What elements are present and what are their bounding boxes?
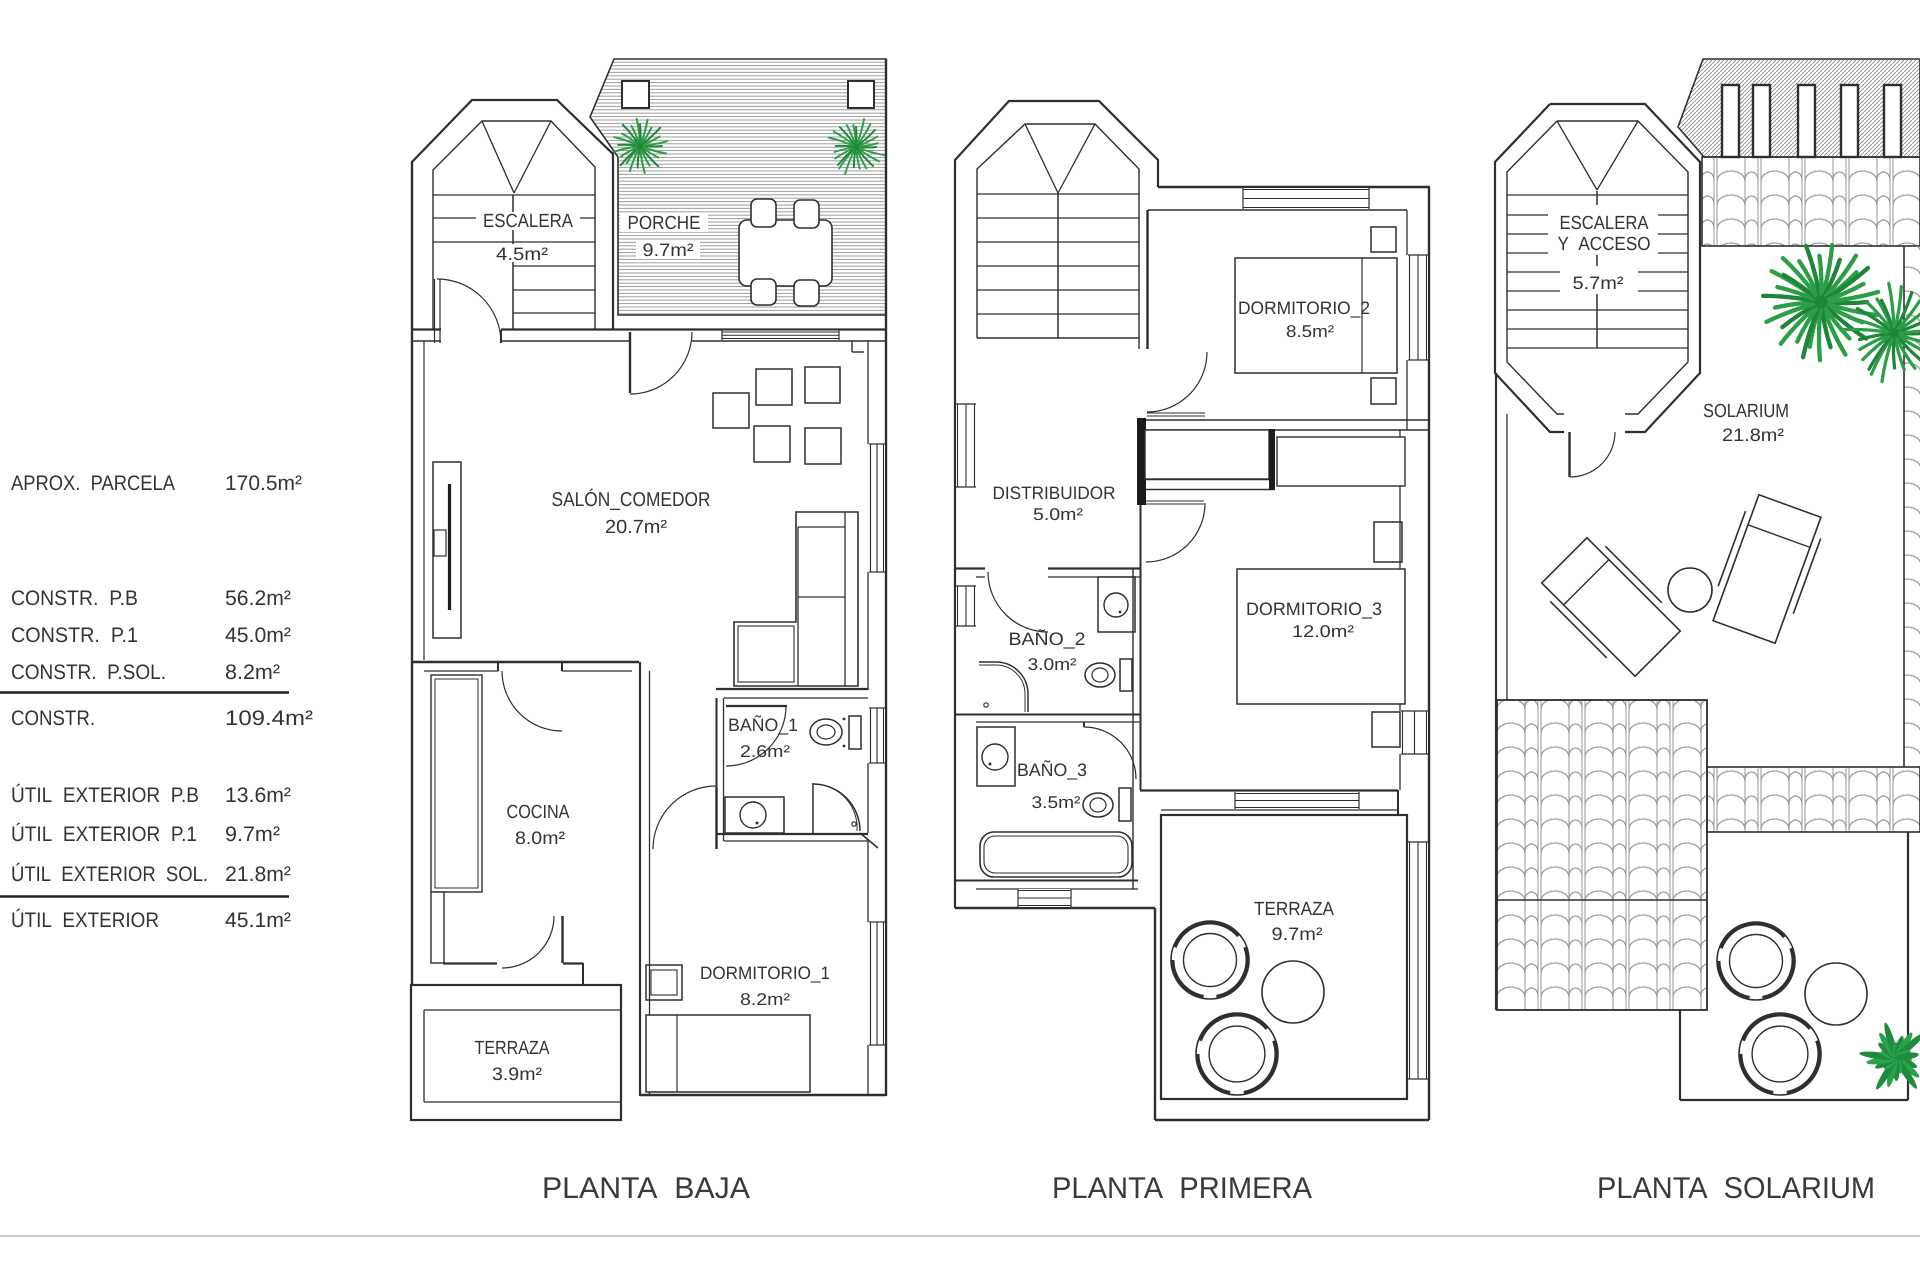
svg-text:BAÑO_2: BAÑO_2 [1009, 629, 1086, 649]
svg-text:45.0m²: 45.0m² [225, 624, 291, 647]
svg-text:ÚTIL EXTERIOR SOL.: ÚTIL EXTERIOR SOL. [11, 862, 208, 886]
svg-text:3.5m²: 3.5m² [1032, 793, 1081, 812]
svg-text:ÚTIL EXTERIOR: ÚTIL EXTERIOR [11, 908, 159, 932]
svg-text:9.7m²: 9.7m² [1272, 924, 1323, 944]
svg-text:TERRAZA: TERRAZA [475, 1038, 550, 1059]
svg-text:8.2m²: 8.2m² [225, 661, 280, 684]
svg-text:56.2m²: 56.2m² [225, 587, 291, 610]
svg-text:SOLARIUM: SOLARIUM [1703, 401, 1789, 422]
svg-text:4.5m²: 4.5m² [496, 244, 548, 264]
svg-text:PLANTA SOLARIUM: PLANTA SOLARIUM [1597, 1172, 1875, 1205]
svg-text:21.8m²: 21.8m² [1722, 425, 1784, 445]
svg-text:20.7m²: 20.7m² [605, 517, 667, 538]
svg-text:9.7m²: 9.7m² [225, 823, 280, 846]
svg-text:9.7m²: 9.7m² [643, 240, 694, 260]
svg-text:5.7m²: 5.7m² [1573, 273, 1624, 293]
svg-text:TERRAZA: TERRAZA [1254, 899, 1334, 920]
svg-text:DORMITORIO_3: DORMITORIO_3 [1246, 599, 1382, 619]
svg-text:13.6m²: 13.6m² [225, 784, 291, 807]
svg-text:DISTRIBUIDOR: DISTRIBUIDOR [993, 483, 1116, 503]
svg-text:PORCHE: PORCHE [628, 213, 701, 234]
svg-text:8.0m²: 8.0m² [515, 828, 565, 848]
svg-text:ÚTIL EXTERIOR P.1: ÚTIL EXTERIOR P.1 [11, 822, 197, 846]
svg-text:ÚTIL EXTERIOR P.B: ÚTIL EXTERIOR P.B [11, 783, 199, 807]
svg-text:2.6m²: 2.6m² [740, 742, 790, 761]
svg-text:45.1m²: 45.1m² [225, 909, 291, 932]
svg-text:5.0m²: 5.0m² [1033, 505, 1083, 524]
svg-text:DORMITORIO_1: DORMITORIO_1 [700, 963, 830, 983]
svg-text:3.0m²: 3.0m² [1028, 655, 1077, 674]
svg-text:21.8m²: 21.8m² [225, 863, 291, 886]
svg-text:PLANTA BAJA: PLANTA BAJA [542, 1172, 750, 1205]
svg-text:BAÑO_3: BAÑO_3 [1017, 760, 1087, 780]
svg-text:APROX. PARCELA: APROX. PARCELA [11, 472, 175, 495]
svg-text:DORMITORIO_2: DORMITORIO_2 [1238, 298, 1370, 318]
svg-text:ESCALERA: ESCALERA [483, 211, 573, 232]
svg-text:SALÓN_COMEDOR: SALÓN_COMEDOR [552, 488, 711, 511]
svg-text:3.9m²: 3.9m² [492, 1064, 542, 1084]
svg-text:PLANTA PRIMERA: PLANTA PRIMERA [1052, 1172, 1312, 1205]
svg-text:8.2m²: 8.2m² [740, 990, 790, 1009]
svg-text:12.0m²: 12.0m² [1292, 622, 1354, 641]
svg-text:BAÑO_1: BAÑO_1 [728, 715, 798, 735]
svg-text:ESCALERA: ESCALERA [1560, 213, 1649, 234]
svg-text:CONSTR. P.SOL.: CONSTR. P.SOL. [11, 661, 166, 684]
svg-text:COCINA: COCINA [507, 802, 570, 823]
svg-text:CONSTR. P.1: CONSTR. P.1 [11, 624, 138, 647]
svg-text:Y ACCESO: Y ACCESO [1558, 234, 1651, 255]
svg-text:109.4m²: 109.4m² [225, 707, 313, 730]
svg-text:170.5m²: 170.5m² [225, 472, 302, 495]
svg-text:CONSTR. P.B: CONSTR. P.B [11, 587, 138, 610]
svg-text:8.5m²: 8.5m² [1286, 322, 1334, 341]
svg-text:CONSTR.: CONSTR. [11, 707, 95, 730]
